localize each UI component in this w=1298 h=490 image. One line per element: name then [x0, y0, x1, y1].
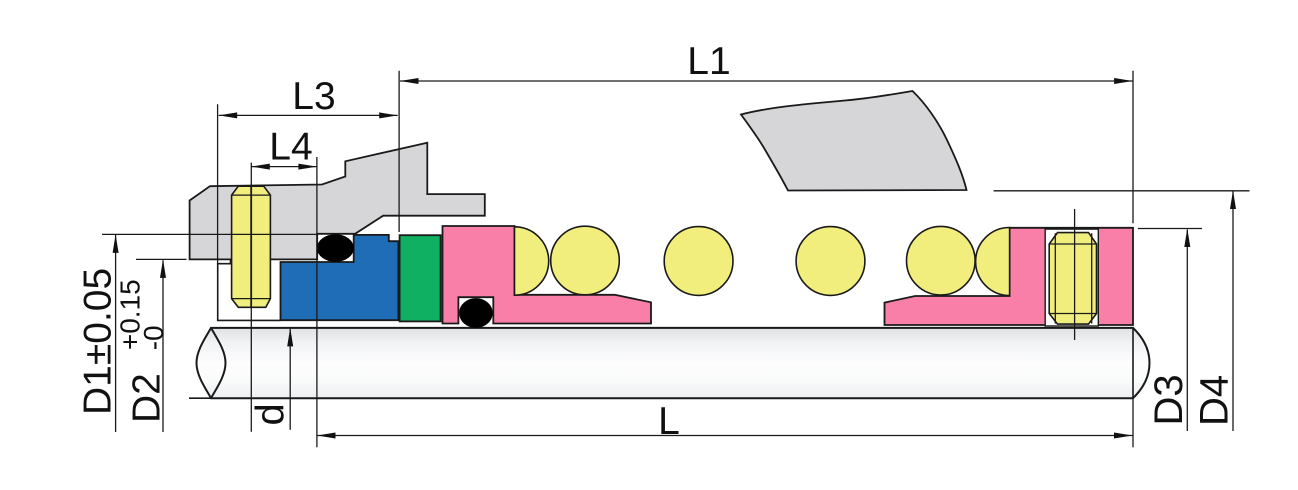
svg-text:L4: L4 [269, 126, 312, 169]
svg-text:D4: D4 [1193, 375, 1237, 426]
svg-text:D3: D3 [1147, 374, 1191, 425]
svg-text:L1: L1 [687, 40, 730, 83]
svg-text:L: L [658, 400, 680, 443]
svg-text:L3: L3 [292, 75, 335, 118]
svg-text:D1±0.05: D1±0.05 [77, 268, 120, 415]
svg-text:d: d [249, 403, 293, 425]
